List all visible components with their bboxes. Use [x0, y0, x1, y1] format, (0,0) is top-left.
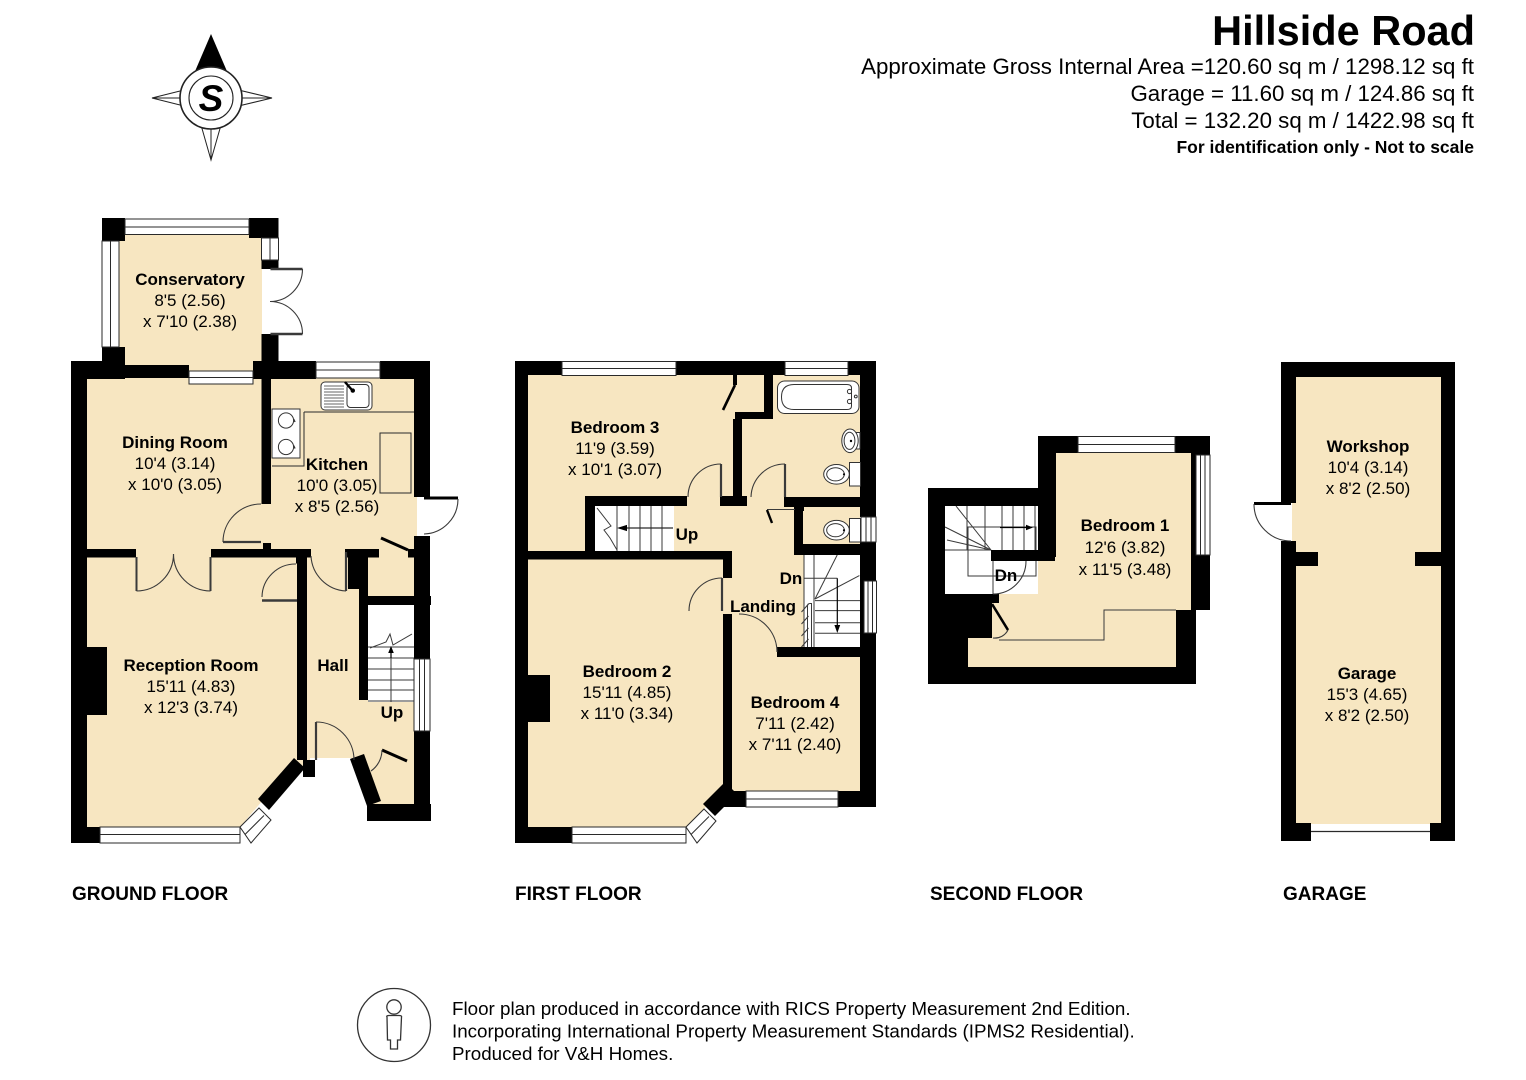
svg-text:Dining Room: Dining Room — [122, 433, 228, 452]
svg-text:8'5 (2.56): 8'5 (2.56) — [154, 291, 225, 310]
svg-text:x 12'3 (3.74): x 12'3 (3.74) — [144, 698, 238, 717]
svg-text:x 8'5 (2.56): x 8'5 (2.56) — [295, 497, 380, 516]
svg-text:Floor plan produced in accorda: Floor plan produced in accordance with R… — [452, 998, 1131, 1019]
svg-text:Landing: Landing — [730, 597, 796, 616]
svg-text:x 11'5 (3.48): x 11'5 (3.48) — [1079, 560, 1172, 579]
svg-text:Total = 132.20 sq m / 1422.98: Total = 132.20 sq m / 1422.98 sq ft — [1131, 108, 1475, 133]
svg-text:Kitchen: Kitchen — [306, 455, 368, 474]
svg-text:S: S — [199, 78, 224, 119]
svg-text:Bedroom 4: Bedroom 4 — [751, 693, 840, 712]
svg-text:10'4 (3.14): 10'4 (3.14) — [135, 454, 216, 473]
svg-text:Up: Up — [381, 703, 404, 722]
svg-text:x 8'2 (2.50): x 8'2 (2.50) — [1325, 706, 1410, 725]
svg-text:11'9 (3.59): 11'9 (3.59) — [575, 439, 654, 458]
svg-text:12'6 (3.82): 12'6 (3.82) — [1085, 538, 1166, 557]
svg-text:x 10'0 (3.05): x 10'0 (3.05) — [128, 475, 222, 494]
svg-text:Dn: Dn — [780, 569, 803, 588]
svg-text:Hall: Hall — [317, 656, 348, 675]
svg-text:Dn: Dn — [995, 566, 1018, 585]
svg-text:x 10'1 (3.07): x 10'1 (3.07) — [568, 460, 662, 479]
svg-text:GROUND FLOOR: GROUND FLOOR — [72, 884, 228, 905]
svg-text:x 11'0 (3.34): x 11'0 (3.34) — [581, 704, 674, 723]
svg-text:Bedroom 1: Bedroom 1 — [1081, 516, 1170, 535]
svg-text:x 8'2 (2.50): x 8'2 (2.50) — [1326, 479, 1411, 498]
svg-text:Produced for V&H Homes.: Produced for V&H Homes. — [452, 1043, 673, 1064]
svg-text:Hillside Road: Hillside Road — [1212, 7, 1475, 54]
svg-text:SECOND FLOOR: SECOND FLOOR — [930, 884, 1083, 905]
svg-text:10'4 (3.14): 10'4 (3.14) — [1328, 458, 1409, 477]
svg-text:Bedroom 3: Bedroom 3 — [571, 418, 660, 437]
svg-text:Workshop: Workshop — [1327, 437, 1410, 456]
svg-text:FIRST FLOOR: FIRST FLOOR — [515, 884, 642, 905]
svg-text:x 7'10 (2.38): x 7'10 (2.38) — [143, 312, 237, 331]
svg-text:7'11 (2.42): 7'11 (2.42) — [755, 714, 834, 733]
svg-text:15'11 (4.83): 15'11 (4.83) — [147, 677, 236, 696]
svg-text:10'0 (3.05): 10'0 (3.05) — [297, 476, 378, 495]
svg-text:Bedroom 2: Bedroom 2 — [583, 662, 672, 681]
svg-text:15'11 (4.85): 15'11 (4.85) — [583, 683, 672, 702]
svg-text:Approximate Gross Internal Are: Approximate Gross Internal Area =120.60 … — [861, 54, 1475, 79]
svg-text:Up: Up — [676, 525, 699, 544]
svg-text:GARAGE: GARAGE — [1283, 884, 1366, 905]
svg-text:Reception Room: Reception Room — [123, 656, 258, 675]
svg-text:x 7'11 (2.40): x 7'11 (2.40) — [749, 735, 842, 754]
svg-text:15'3 (4.65): 15'3 (4.65) — [1327, 685, 1408, 704]
svg-text:For identification only - Not: For identification only - Not to scale — [1176, 137, 1474, 157]
svg-text:Garage = 11.60 sq m / 124.86 s: Garage = 11.60 sq m / 124.86 sq ft — [1130, 81, 1474, 106]
svg-text:Conservatory: Conservatory — [135, 270, 245, 289]
svg-text:Incorporating International Pr: Incorporating International Property Mea… — [452, 1021, 1135, 1042]
svg-text:Garage: Garage — [1338, 664, 1397, 683]
